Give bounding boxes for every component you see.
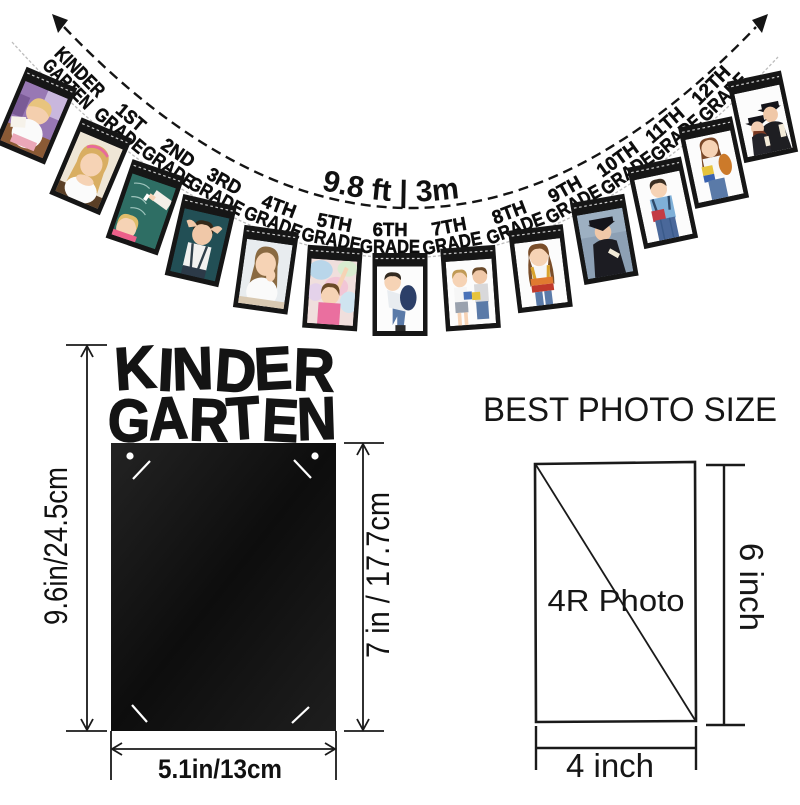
svg-text:7 in / 17.7cm: 7 in / 17.7cm [360, 492, 396, 658]
svg-text:9.6in/24.5cm: 9.6in/24.5cm [38, 467, 74, 625]
svg-text:5.1in/13cm: 5.1in/13cm [158, 754, 282, 784]
svg-text:4 inch: 4 inch [566, 747, 654, 784]
svg-text:4R Photo: 4R Photo [548, 583, 685, 618]
svg-text:6 inch: 6 inch [733, 543, 770, 631]
svg-text:BEST PHOTO SIZE: BEST PHOTO SIZE [483, 391, 777, 429]
